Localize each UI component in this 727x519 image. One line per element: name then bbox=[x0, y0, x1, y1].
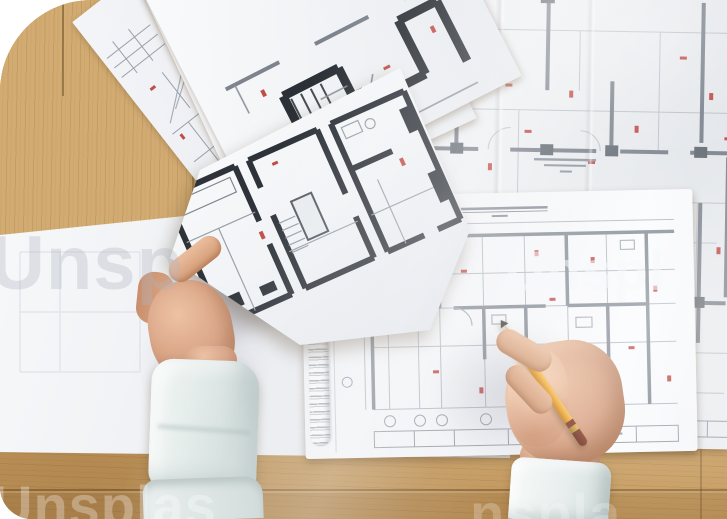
right-shirt-cuff bbox=[508, 457, 612, 519]
wood-shading bbox=[0, 491, 727, 519]
left-shirt-sleeve bbox=[142, 476, 263, 519]
wood-seam bbox=[62, 0, 64, 96]
photo-architect-desk: Unsp Unspl Unsplas nspla bbox=[0, 0, 727, 519]
